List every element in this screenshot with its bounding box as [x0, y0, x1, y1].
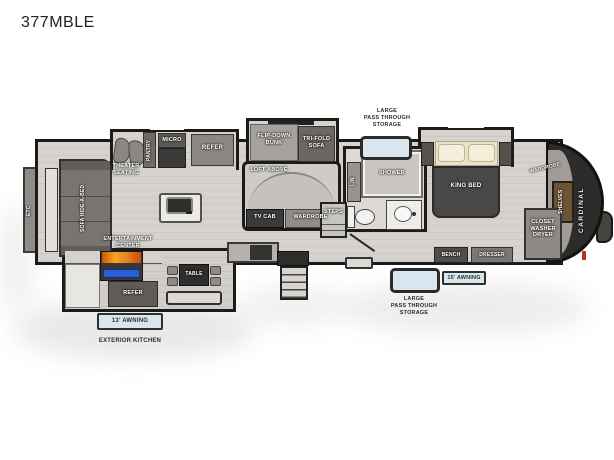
entertainment-center-label: ENTERTAINMENT CENTER	[94, 236, 162, 249]
shower-label: SHOWER	[363, 170, 421, 177]
chair	[210, 266, 221, 275]
pillow	[468, 144, 495, 162]
closet-washer-dryer-label: CLOSET WASHER DRYER	[524, 219, 562, 239]
entry-landing	[277, 251, 309, 266]
window	[448, 125, 484, 128]
table-label: TABLE	[179, 271, 209, 277]
micro-label: MICRO	[158, 137, 186, 144]
toilet-tank	[347, 206, 355, 228]
ground-shadow	[340, 282, 590, 334]
theater-seating-label: THEATER SEATING	[102, 163, 150, 176]
loft-above-label: LOFT ABOVE	[246, 167, 292, 174]
bench-label: BENCH	[434, 252, 468, 258]
pass-through-storage-bottom	[390, 268, 440, 293]
lin-label: LIN	[350, 172, 356, 192]
king-bed-label: KING BED	[432, 183, 500, 190]
faucet	[186, 211, 192, 214]
lower-cabinet	[65, 264, 100, 308]
window	[150, 127, 184, 130]
steps-label: STEPS	[319, 209, 348, 216]
oven-window	[103, 269, 140, 278]
pass-through-top-label: LARGE PASS THROUGH STORAGE	[352, 108, 422, 129]
exterior-kitchen-label: EXTERIOR KITCHEN	[86, 338, 174, 346]
king-bed	[432, 166, 500, 218]
vanity-faucet	[412, 212, 416, 216]
pantry-label: PANTRY	[146, 136, 152, 164]
cooktop	[250, 245, 272, 260]
exterior-refer-label: REFER	[108, 290, 158, 297]
pass-through-bottom-label: LARGE PASS THROUGH STORAGE	[382, 296, 446, 317]
pass-through-storage-top	[360, 136, 412, 160]
rv-floorplan: ETC CARDINAL THEATER SEATING PANTRY MICR…	[0, 0, 614, 460]
pillow	[438, 144, 465, 162]
kitchen-counter-top	[158, 148, 186, 168]
dinette-mat	[166, 291, 222, 305]
range-flame	[102, 252, 141, 263]
chair	[167, 277, 178, 286]
awning-15-label: 15' AWNING	[442, 275, 486, 282]
page-title: 377MBLE	[21, 14, 95, 32]
vanity-sink	[394, 206, 412, 222]
entry-step-rungs	[282, 268, 306, 298]
dresser-label: DRESSER	[471, 252, 513, 258]
chair	[210, 277, 221, 286]
tri-fold-sofa-label: TRI-FOLD SOFA	[298, 136, 335, 149]
nightstand	[499, 142, 512, 166]
awning-13-label: 13' AWNING	[97, 318, 163, 326]
toilet-bowl	[355, 209, 375, 225]
shelves-label: SHELVES	[558, 187, 564, 217]
flip-down-bunk-label: FLIP-DOWN BUNK	[250, 133, 298, 146]
step-rungs	[322, 219, 345, 236]
sofa-label: SOFA HIDE-A-BED	[80, 180, 86, 236]
entry-mat	[345, 257, 373, 269]
etc-label: ETC	[26, 196, 32, 226]
chair	[167, 266, 178, 275]
rear-shelf	[45, 168, 58, 252]
nightstand	[421, 142, 434, 166]
refer-label: REFER	[191, 145, 234, 152]
tv-cab-label: TV CAB	[246, 214, 284, 221]
brand-accent	[582, 251, 586, 260]
brand-logo: CARDINAL	[578, 172, 586, 248]
